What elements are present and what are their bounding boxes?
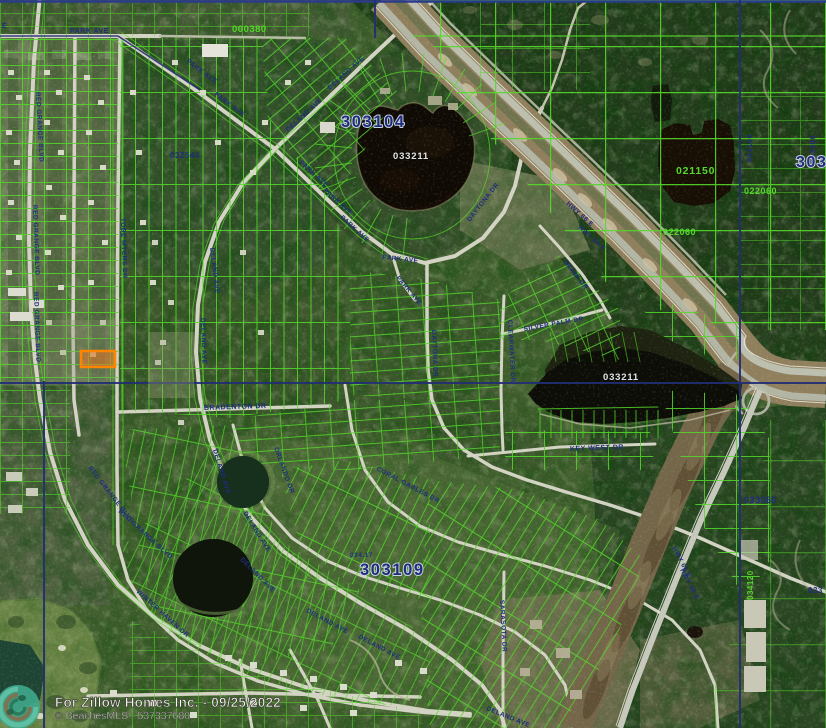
- svg-text:E: E: [2, 23, 7, 30]
- svg-text:033211: 033211: [393, 151, 429, 162]
- svg-text:303104: 303104: [341, 113, 406, 131]
- svg-text:043100: 043100: [745, 134, 754, 162]
- svg-text:3031: 3031: [796, 154, 826, 171]
- svg-text:032544: 032544: [170, 151, 200, 160]
- svg-text:022060: 022060: [744, 186, 777, 196]
- svg-text:000380: 000380: [232, 24, 267, 35]
- svg-text:033211: 033211: [603, 372, 639, 383]
- svg-text:033: 033: [808, 586, 823, 595]
- svg-text:For Zillow Homes Inc. - 09/25: For Zillow Homes Inc. - 09/25/2022: [55, 695, 281, 710]
- svg-text:021150: 021150: [676, 165, 715, 177]
- svg-text:303109: 303109: [360, 561, 425, 579]
- svg-text:034120: 034120: [746, 570, 755, 600]
- svg-text:022060: 022060: [663, 227, 696, 237]
- svg-text:034.17: 034.17: [350, 552, 373, 559]
- svg-text:© BeachesMLS - 537337680: © BeachesMLS - 537337680: [55, 710, 190, 722]
- svg-text:PARK AVE: PARK AVE: [70, 28, 109, 35]
- svg-text:033060: 033060: [744, 495, 777, 505]
